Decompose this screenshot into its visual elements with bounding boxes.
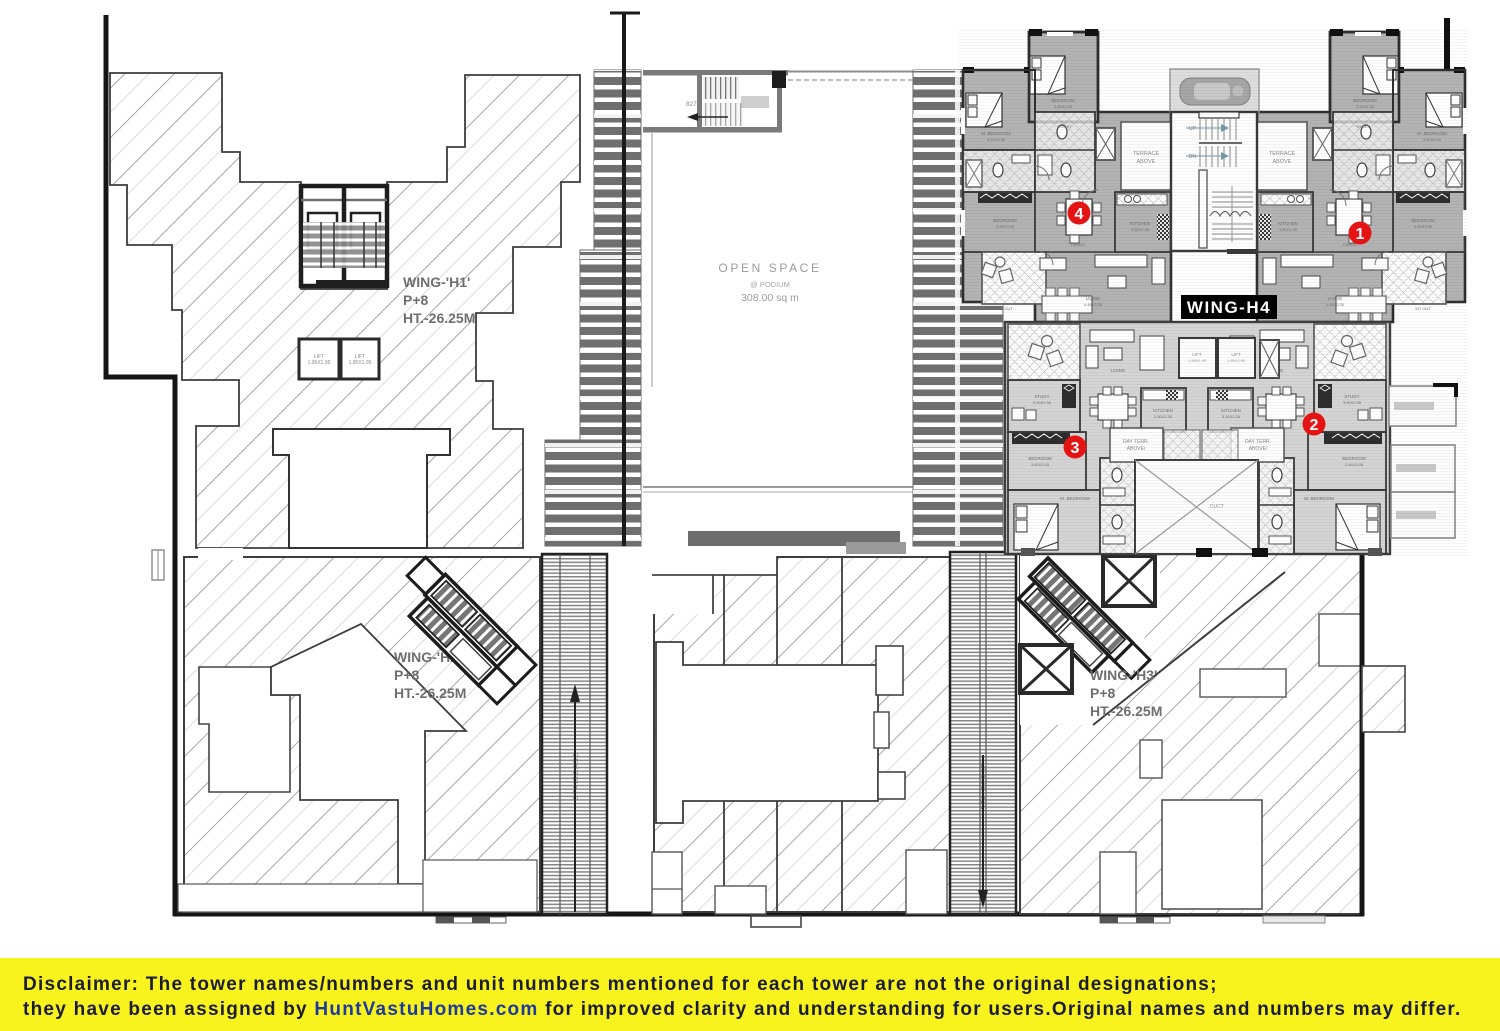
- svg-text:HT.-26.25M: HT.-26.25M: [1090, 703, 1162, 719]
- svg-text:2: 2: [1310, 417, 1319, 434]
- svg-text:P+8: P+8: [403, 292, 429, 308]
- svg-text:@ PODIUM: @ PODIUM: [750, 280, 790, 289]
- svg-text:P+8: P+8: [1090, 685, 1116, 701]
- svg-text:3: 3: [1071, 440, 1080, 457]
- svg-text:4: 4: [1075, 206, 1084, 223]
- svg-text:HT.-26.25M: HT.-26.25M: [403, 310, 475, 326]
- svg-text:308.00 sq m: 308.00 sq m: [741, 292, 799, 304]
- svg-text:1.95X1.95: 1.95X1.95: [349, 360, 372, 366]
- svg-text:P+8: P+8: [394, 667, 420, 683]
- svg-text:WING-'H3': WING-'H3': [1090, 667, 1157, 683]
- svg-text:OPEN SPACE: OPEN SPACE: [718, 261, 821, 275]
- svg-text:827: 827: [686, 101, 697, 108]
- svg-text:HT.-26.25M: HT.-26.25M: [394, 685, 466, 701]
- svg-text:WING-'H1': WING-'H1': [403, 274, 470, 290]
- svg-text:1: 1: [1356, 226, 1365, 243]
- svg-text:1.95X1.95: 1.95X1.95: [308, 360, 331, 366]
